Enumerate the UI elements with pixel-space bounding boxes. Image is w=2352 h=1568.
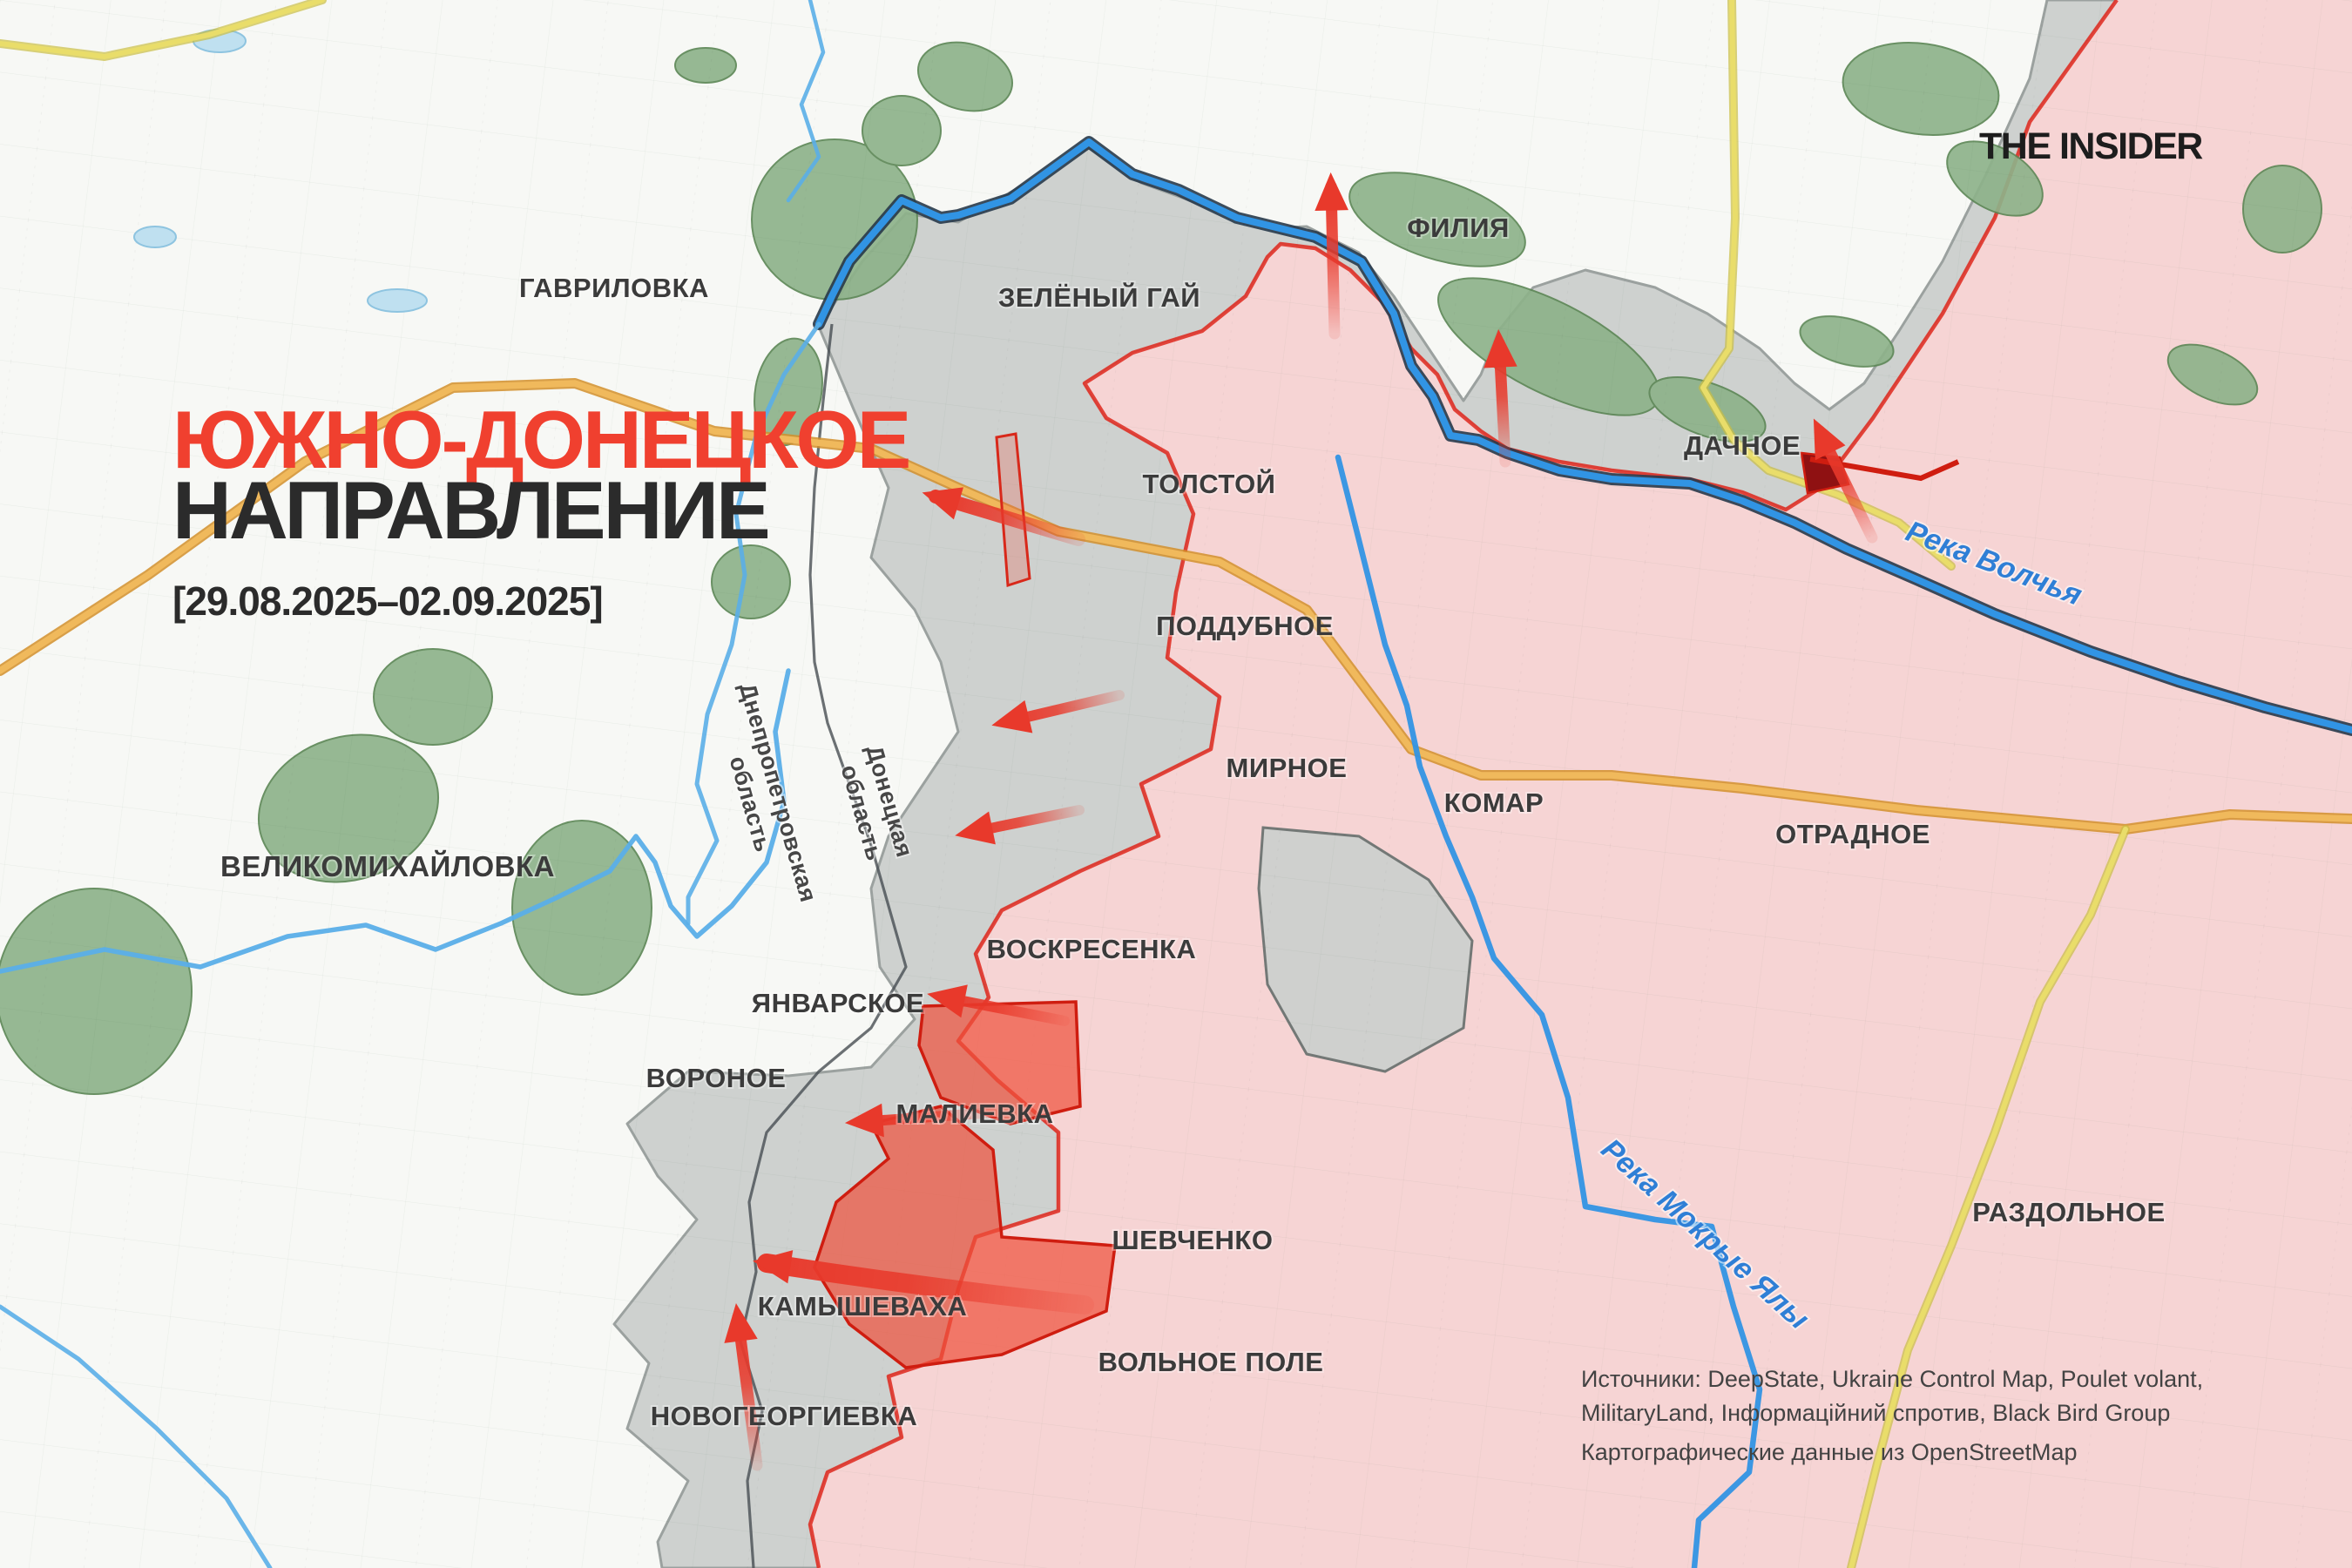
- town-label-12: МАЛИЕВКА: [896, 1098, 1054, 1129]
- town-label-9: ВОСКРЕСЕНКА: [987, 934, 1197, 964]
- town-label-14: КАМЫШЕВАХА: [758, 1291, 968, 1321]
- town-label-8: ОТРАДНОЕ: [1775, 819, 1930, 849]
- town-label-4: ТОЛСТОЙ: [1143, 468, 1276, 499]
- town-label-1: ЗЕЛЁНЫЙ ГАЙ: [998, 281, 1200, 313]
- town-label-15: ВОЛЬНОЕ ПОЛЕ: [1098, 1347, 1324, 1377]
- town-label-0: ГАВРИЛОВКА: [519, 273, 709, 303]
- situation-map: ГАВРИЛОВКАЗЕЛЁНЫЙ ГАЙФИЛИЯДАЧНОЕТОЛСТОЙП…: [0, 0, 2352, 1568]
- map-page: { "header": { "title_line1": "ЮЖНО-ДОНЕЦ…: [0, 0, 2352, 1568]
- field-grid-texture: [0, 0, 2352, 1568]
- town-label-6: МИРНОЕ: [1227, 753, 1348, 783]
- map-date-range: [29.08.2025–02.09.2025]: [172, 578, 603, 624]
- town-label-10: ЯНВАРСКОЕ: [752, 988, 924, 1018]
- town-label-5: ПОДДУБНОЕ: [1156, 611, 1334, 641]
- town-label-17: ВЕЛИКОМИХАЙЛОВКА: [220, 849, 555, 882]
- sources-line2: MilitaryLand, Інформаційний спротив, Bla…: [1581, 1400, 2170, 1426]
- map-title-line2: НАПРАВЛЕНИЕ: [172, 464, 768, 556]
- attack-filiya-west-icon: [1331, 186, 1335, 334]
- town-label-13: ШЕВЧЕНКО: [1112, 1225, 1274, 1255]
- town-label-16: НОВОГЕОРГИЕВКА: [651, 1401, 918, 1431]
- sources-line1: Источники: DeepState, Ukraine Control Ma…: [1581, 1366, 2203, 1392]
- town-label-2: ФИЛИЯ: [1407, 213, 1510, 243]
- town-label-7: КОМАР: [1444, 787, 1544, 818]
- town-label-11: ВОРОНОЕ: [646, 1063, 787, 1093]
- town-label-3: ДАЧНОЕ: [1684, 430, 1801, 461]
- town-label-18: РАЗДОЛЬНОЕ: [1972, 1197, 2165, 1227]
- the-insider-logo: THE INSIDER: [1979, 125, 2203, 167]
- attack-filiya-east-icon: [1499, 343, 1505, 462]
- sources-line3: Картографические данные из OpenStreetMap: [1581, 1439, 2078, 1465]
